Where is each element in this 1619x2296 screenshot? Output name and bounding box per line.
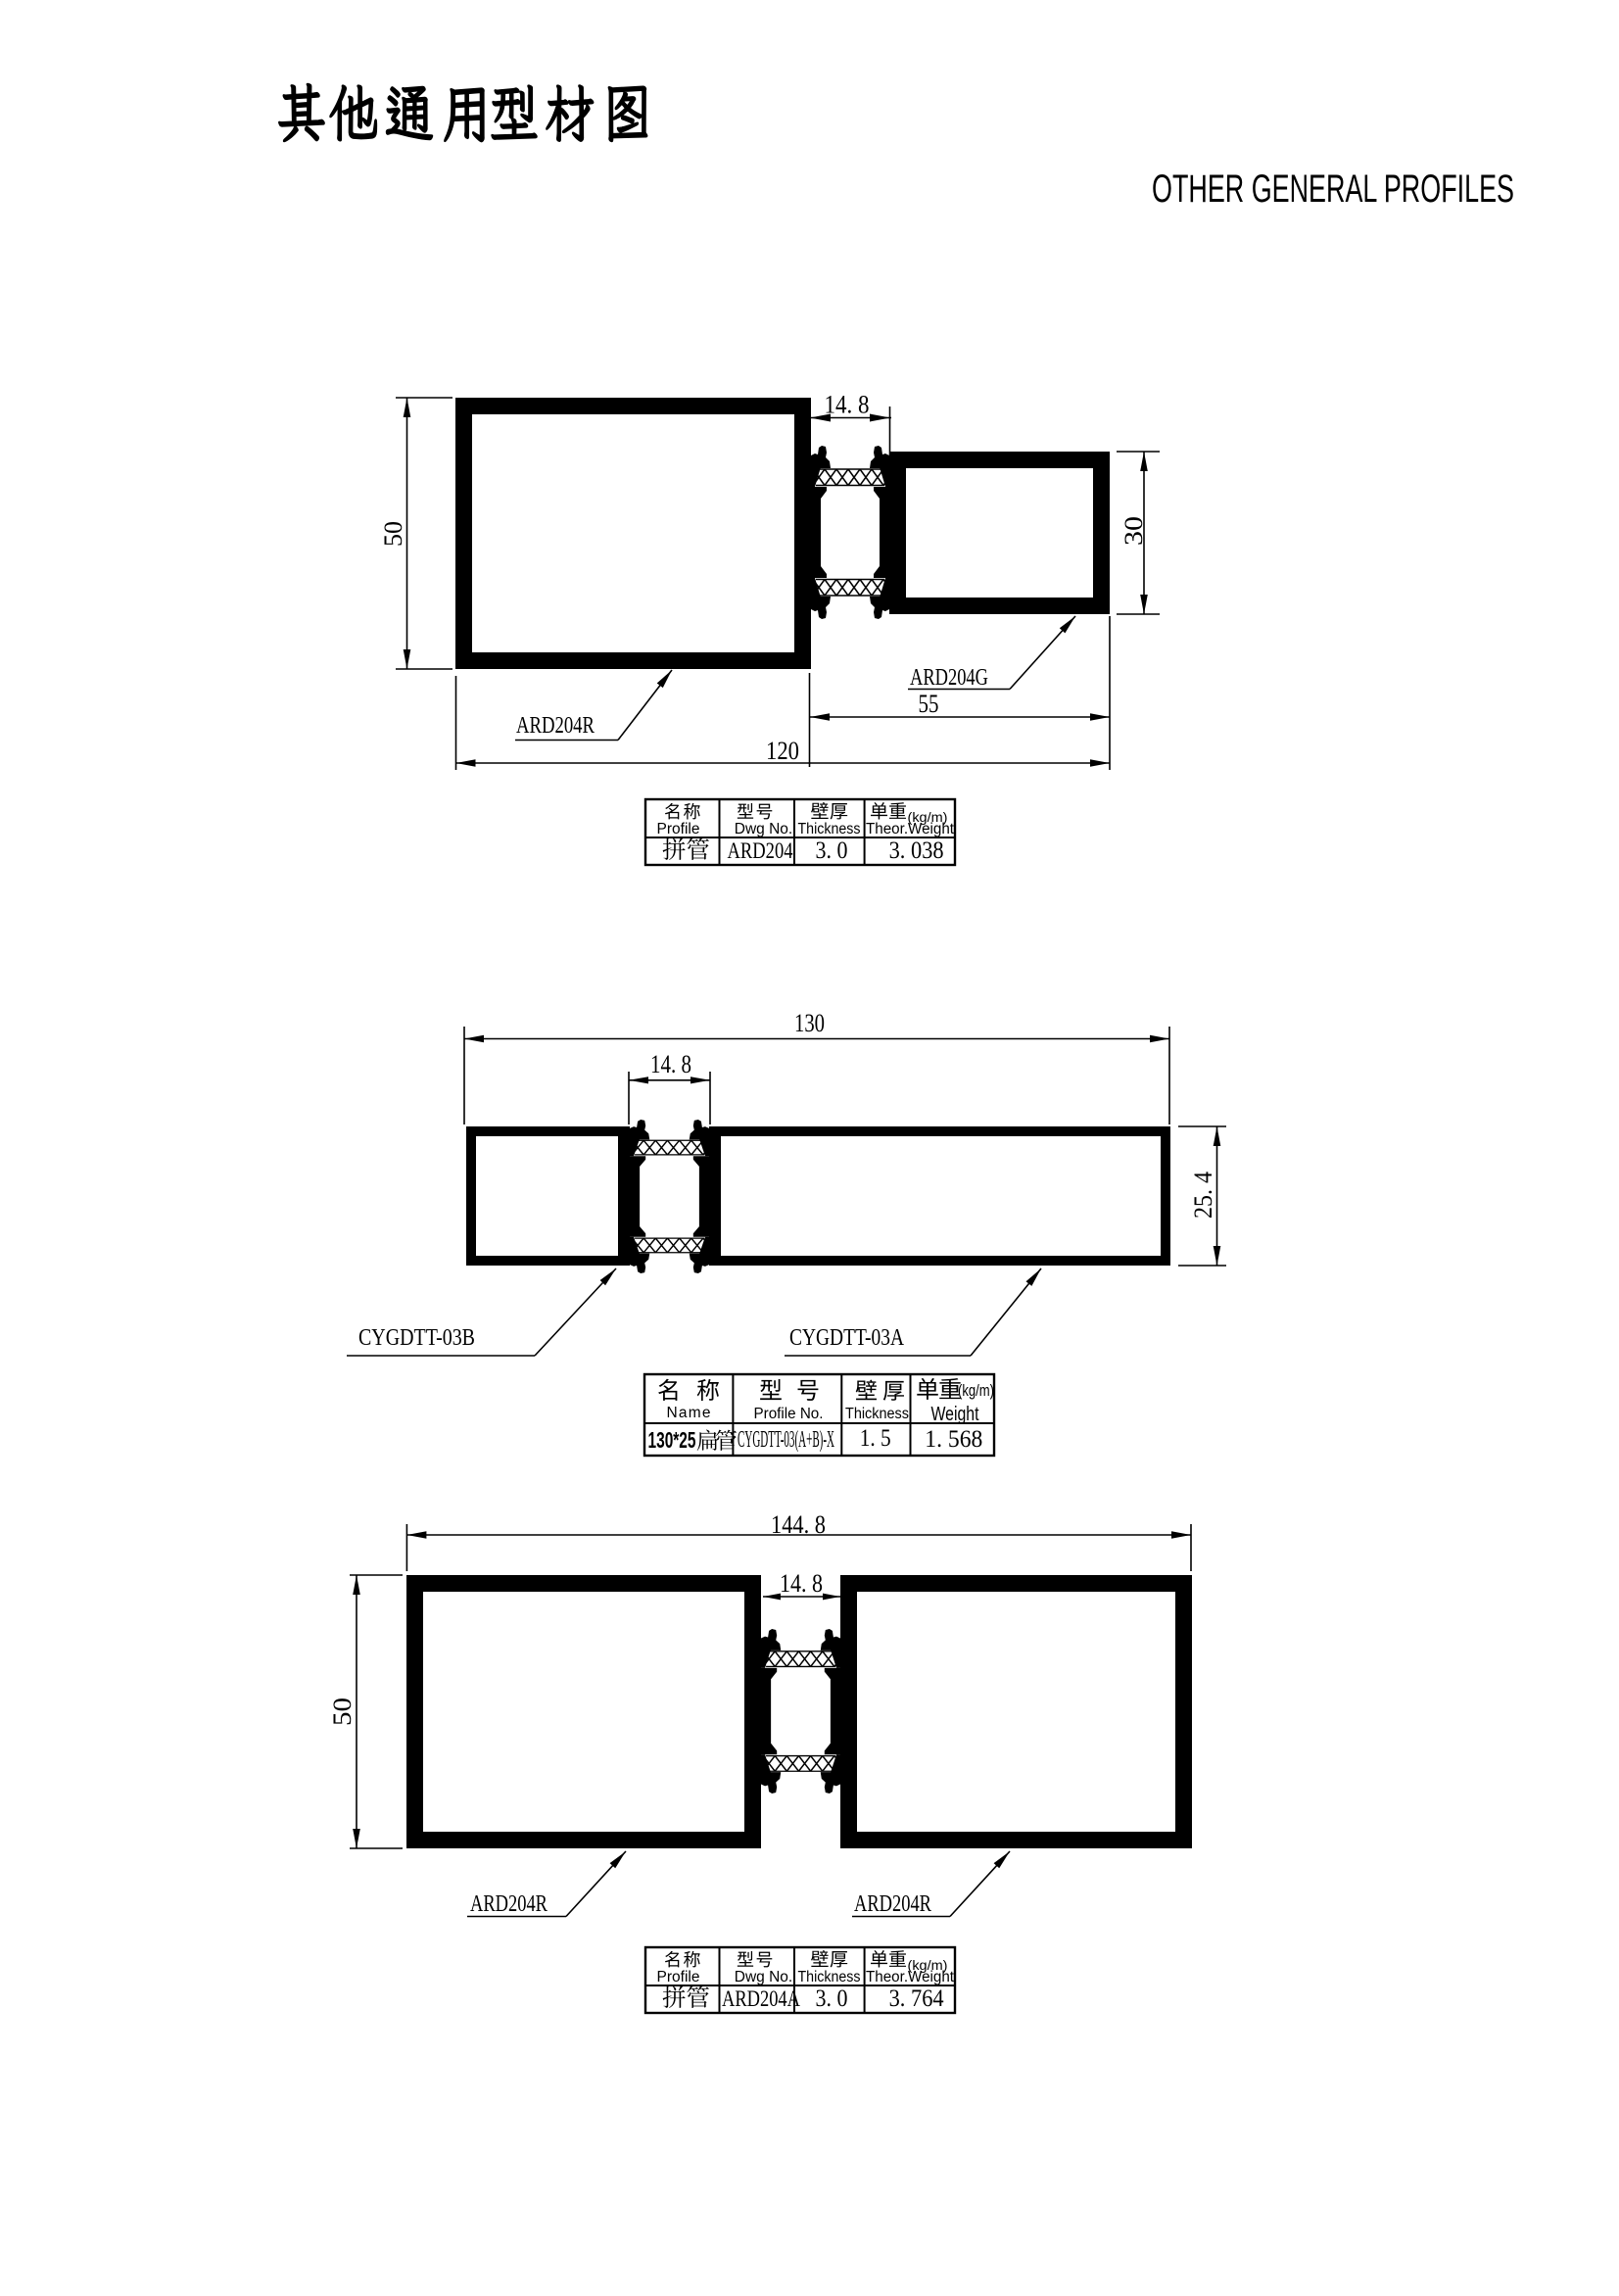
svg-text:ARD204: ARD204	[728, 838, 793, 863]
svg-text:CYGDTT-03B: CYGDTT-03B	[358, 1325, 475, 1351]
svg-text:Theor.Weight: Theor.Weight	[866, 821, 955, 837]
svg-text:50: 50	[379, 521, 407, 547]
svg-text:30: 30	[1119, 516, 1148, 546]
svg-text:50: 50	[328, 1698, 357, 1726]
svg-text:130*25: 130*25	[648, 1427, 696, 1453]
svg-text:14. 8: 14. 8	[825, 391, 870, 419]
svg-text:120: 120	[766, 737, 799, 765]
svg-text:Theor.Weight: Theor.Weight	[866, 1969, 955, 1985]
svg-text:Thickness: Thickness	[798, 1969, 861, 1985]
svg-text:Thickness: Thickness	[798, 821, 861, 837]
svg-text:Name: Name	[667, 1405, 711, 1421]
svg-text:3. 0: 3. 0	[816, 837, 848, 864]
svg-text:ARD204A: ARD204A	[722, 1986, 800, 2011]
svg-text:3. 0: 3. 0	[816, 1985, 848, 2012]
svg-text:OTHER GENERAL PROFILES: OTHER GENERAL PROFILES	[1152, 167, 1514, 211]
svg-text:1. 5: 1. 5	[860, 1425, 891, 1452]
svg-text:Weight: Weight	[931, 1404, 979, 1425]
svg-text:CYGDTT-03A: CYGDTT-03A	[789, 1325, 905, 1351]
svg-text:Dwg No.: Dwg No.	[735, 1969, 792, 1985]
svg-text:55: 55	[919, 690, 939, 718]
svg-text:ARD204G: ARD204G	[910, 665, 988, 691]
svg-text:Profile: Profile	[657, 1969, 700, 1985]
svg-text:Dwg No.: Dwg No.	[735, 821, 792, 837]
svg-text:14. 8: 14. 8	[650, 1050, 691, 1078]
svg-text:25. 4: 25. 4	[1189, 1172, 1217, 1219]
svg-text:ARD204R: ARD204R	[470, 1891, 548, 1917]
svg-text:ARD204R: ARD204R	[854, 1891, 931, 1917]
svg-text:1. 568: 1. 568	[925, 1426, 982, 1453]
svg-text:3. 038: 3. 038	[889, 837, 944, 864]
svg-text:ARD204R: ARD204R	[516, 713, 595, 739]
svg-text:Thickness: Thickness	[845, 1406, 909, 1422]
svg-text:130: 130	[794, 1009, 825, 1037]
svg-text:3. 764: 3. 764	[889, 1985, 944, 2012]
svg-text:144. 8: 144. 8	[771, 1510, 826, 1539]
svg-text:(kg/m): (kg/m)	[958, 1381, 994, 1400]
svg-text:Profile: Profile	[657, 821, 700, 837]
svg-text:Profile No.: Profile No.	[754, 1406, 824, 1422]
svg-text:14. 8: 14. 8	[780, 1569, 823, 1598]
svg-text:CYGDTT-03(A+B)-X: CYGDTT-03(A+B)-X	[738, 1427, 834, 1453]
